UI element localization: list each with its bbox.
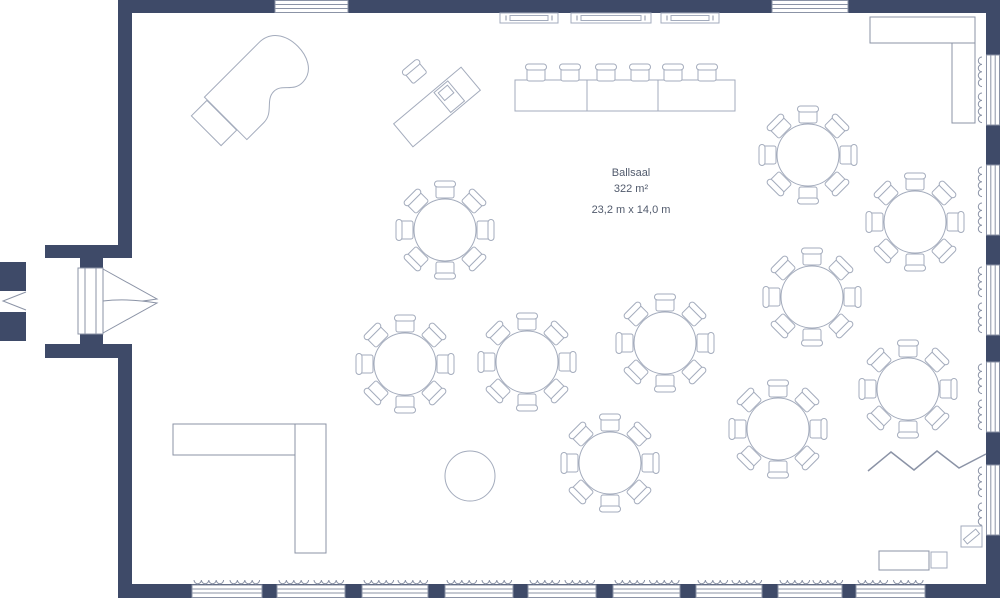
chair-backrest [448, 354, 454, 375]
round-table-5[interactable] [616, 294, 714, 392]
alcove-wall-bottom [45, 344, 132, 358]
curtain [482, 580, 512, 584]
curtain [813, 580, 843, 584]
window-glass [987, 55, 1000, 125]
table-top [496, 331, 558, 393]
chair[interactable] [561, 453, 578, 474]
room-label: Ballsaal 322 m² 23,2 m x 14,0 m [556, 166, 706, 219]
window-bottom-9 [856, 580, 925, 598]
curtain [894, 580, 924, 584]
room-area: 322 m² [556, 182, 706, 198]
chair[interactable] [844, 287, 861, 308]
window-bottom-6 [613, 580, 680, 598]
desk[interactable] [394, 67, 481, 147]
chair[interactable] [859, 379, 876, 400]
counter-top-right-1[interactable] [870, 17, 975, 43]
chair-backrest [821, 419, 827, 440]
chair-backrest [478, 352, 484, 373]
service-cart[interactable] [931, 552, 947, 568]
table-top [414, 199, 476, 261]
curtain [978, 57, 982, 87]
door-jamb-top [80, 258, 103, 268]
chair[interactable] [759, 145, 776, 166]
chair[interactable] [517, 313, 538, 330]
curtain [447, 580, 477, 584]
chair[interactable] [905, 173, 926, 190]
chair[interactable] [655, 375, 676, 392]
chair-backrest [951, 379, 957, 400]
curtain [565, 580, 595, 584]
chair-backrest [759, 145, 765, 166]
window-bottom-4 [445, 580, 513, 598]
chair-backrest [560, 64, 581, 70]
floorplan-svg [0, 0, 1000, 598]
chair-backrest [768, 380, 789, 386]
window-glass [778, 585, 842, 598]
window-glass [277, 585, 345, 598]
window-bottom-3 [362, 580, 428, 598]
sideboard-3[interactable] [661, 13, 719, 23]
chair[interactable] [697, 333, 714, 354]
chair-backrest [488, 220, 494, 241]
chair-backrest [905, 265, 926, 271]
table-top [777, 124, 839, 186]
window-glass [696, 585, 762, 598]
curtain [698, 580, 728, 584]
curtain [194, 580, 224, 584]
curtain [650, 580, 680, 584]
round-table-3[interactable] [866, 173, 964, 271]
chair-backrest [958, 212, 964, 233]
round-table-4[interactable] [763, 248, 861, 346]
chair-backrest [802, 340, 823, 346]
chair-backrest [655, 386, 676, 392]
room-name: Ballsaal [556, 166, 706, 182]
sideboard-2[interactable] [571, 13, 651, 23]
chair-backrest [435, 273, 456, 279]
window-glass [613, 585, 680, 598]
chair[interactable] [810, 419, 827, 440]
chair-backrest [630, 64, 651, 70]
door-leaf-top [103, 269, 157, 302]
head-table-chair[interactable] [560, 64, 581, 81]
chair-backrest [356, 354, 362, 375]
chair-backrest [616, 333, 622, 354]
door-frame [78, 268, 103, 334]
window-bottom-8 [778, 580, 843, 598]
chair-backrest [768, 472, 789, 478]
chair-backrest [798, 106, 819, 112]
curtain [530, 580, 560, 584]
chair-backrest [763, 287, 769, 308]
window-glass [856, 585, 925, 598]
chair-backrest [396, 220, 402, 241]
curtain [398, 580, 428, 584]
curtain [732, 580, 762, 584]
chair-backrest [851, 145, 857, 166]
curtain [858, 580, 888, 584]
chair[interactable] [866, 212, 883, 233]
chair-backrest [697, 64, 718, 70]
table-top [781, 266, 843, 328]
window-bottom-2 [277, 580, 345, 598]
round-table-10[interactable] [561, 414, 659, 512]
chair-backrest [866, 212, 872, 233]
floorplan-canvas: Ballsaal 322 m² 23,2 m x 14,0 m [0, 0, 1000, 598]
curtain [230, 580, 260, 584]
chair[interactable] [356, 354, 373, 375]
chair[interactable] [642, 453, 659, 474]
window-glass [987, 265, 1000, 335]
window-right-3 [978, 265, 999, 335]
table-top [747, 398, 809, 460]
chair[interactable] [947, 212, 964, 233]
chair-backrest [663, 64, 684, 70]
chair[interactable] [395, 396, 416, 413]
door-jamb-bottom [80, 334, 103, 344]
window-glass [772, 1, 848, 13]
exterior-stub-bottom [0, 312, 26, 341]
chair[interactable] [396, 220, 413, 241]
chair[interactable] [898, 421, 919, 438]
chair-backrest [561, 453, 567, 474]
window-bottom-5 [528, 580, 596, 598]
service-table[interactable] [879, 551, 929, 570]
chair-backrest [655, 294, 676, 300]
chair[interactable] [798, 106, 819, 123]
curtain [314, 580, 344, 584]
chair-backrest [898, 432, 919, 438]
chair[interactable] [798, 187, 819, 204]
round-table-7[interactable] [478, 313, 576, 411]
window-glass [275, 1, 348, 13]
wall-left-upper [118, 0, 132, 245]
chair-backrest [905, 173, 926, 179]
window-bottom-1 [192, 580, 262, 598]
head-table-1[interactable] [515, 80, 587, 111]
chair-backrest [600, 506, 621, 512]
chair[interactable] [763, 287, 780, 308]
double-door[interactable] [78, 268, 157, 334]
chair[interactable] [517, 394, 538, 411]
chair-backrest [435, 181, 456, 187]
desk-top [394, 67, 481, 147]
chair[interactable] [600, 414, 621, 431]
curtain [615, 580, 645, 584]
chair[interactable] [905, 254, 926, 271]
window-glass [987, 362, 1000, 432]
head-table-3[interactable] [658, 80, 735, 111]
chair-backrest [395, 407, 416, 413]
chair-backrest [653, 453, 659, 474]
head-table-chair[interactable] [663, 64, 684, 81]
chair-backrest [600, 414, 621, 420]
chair-backrest [395, 315, 416, 321]
cocktail-table[interactable] [445, 451, 495, 501]
chair[interactable] [802, 248, 823, 265]
alcove-wall-top [45, 245, 132, 258]
chair[interactable] [437, 354, 454, 375]
wall-left-lower [118, 358, 132, 598]
chair[interactable] [940, 379, 957, 400]
chair[interactable] [768, 380, 789, 397]
curtain [279, 580, 309, 584]
chair-backrest [708, 333, 714, 354]
round-table-2[interactable] [759, 106, 857, 204]
counter-top-right-2[interactable] [952, 43, 975, 123]
window-right-5 [978, 465, 999, 535]
desk-chair[interactable] [401, 58, 428, 85]
window-bottom-7 [696, 580, 762, 598]
wall-top [118, 0, 1000, 13]
window-glass [362, 585, 428, 598]
chair[interactable] [768, 461, 789, 478]
round-table-8[interactable] [859, 340, 957, 438]
exterior-stub-top [0, 262, 26, 291]
window-glass [987, 465, 1000, 535]
chair[interactable] [840, 145, 857, 166]
chair[interactable] [395, 315, 416, 332]
room-dimensions: 23,2 m x 14,0 m [556, 203, 706, 219]
exterior-door-marks [3, 292, 26, 310]
curtain [978, 93, 982, 123]
chair-backrest [526, 64, 547, 70]
table-top [884, 191, 946, 253]
sideboard-1[interactable] [500, 13, 558, 23]
table-top [579, 432, 641, 494]
window-glass [528, 585, 596, 598]
chair-backrest [855, 287, 861, 308]
chair-backrest [859, 379, 865, 400]
bar-counter-2[interactable] [295, 424, 326, 553]
window-glass [445, 585, 513, 598]
curtain [978, 467, 982, 497]
chair-backrest [898, 340, 919, 346]
table-top [634, 312, 696, 374]
chair-backrest [802, 248, 823, 254]
curtain [978, 203, 982, 233]
chair[interactable] [559, 352, 576, 373]
curtain [978, 364, 982, 394]
table-top [374, 333, 436, 395]
chair[interactable] [435, 262, 456, 279]
chair[interactable] [655, 294, 676, 311]
head-table-chair[interactable] [596, 64, 617, 81]
bar-counter-1[interactable] [173, 424, 295, 455]
room-divider[interactable] [868, 451, 986, 471]
curtain [978, 400, 982, 430]
chair-backrest [570, 352, 576, 373]
window-right-4 [978, 362, 999, 432]
chair[interactable] [616, 333, 633, 354]
wall-speaker[interactable] [961, 526, 982, 547]
chair[interactable] [898, 340, 919, 357]
curtain [978, 267, 982, 297]
round-table-1[interactable] [396, 181, 494, 279]
chair[interactable] [478, 352, 495, 373]
head-table-chair[interactable] [526, 64, 547, 81]
chair[interactable] [435, 181, 456, 198]
chair[interactable] [600, 495, 621, 512]
window-right-1 [978, 55, 999, 125]
curtain [364, 580, 394, 584]
curtain [978, 303, 982, 333]
chair-backrest [798, 198, 819, 204]
table-top [877, 358, 939, 420]
sideboard-inner [581, 16, 641, 21]
chair-backrest [517, 313, 538, 319]
chair-backrest [517, 405, 538, 411]
curtain [780, 580, 810, 584]
head-table-chair[interactable] [697, 64, 718, 81]
door-leaf-bottom [103, 300, 157, 333]
chair-backrest [729, 419, 735, 440]
sideboard-inner [510, 16, 548, 21]
window-glass [987, 165, 1000, 235]
window-right-2 [978, 165, 999, 235]
head-table-2[interactable] [587, 80, 658, 111]
round-table-6[interactable] [356, 315, 454, 413]
chair[interactable] [802, 329, 823, 346]
window-top-2 [772, 1, 848, 13]
round-table-9[interactable] [729, 380, 827, 478]
window-glass [192, 585, 262, 598]
window-top-1 [275, 1, 348, 13]
chair[interactable] [477, 220, 494, 241]
sideboard-inner [671, 16, 709, 21]
curtain [978, 167, 982, 197]
chair-backrest [596, 64, 617, 70]
chair[interactable] [729, 419, 746, 440]
head-table-chair[interactable] [630, 64, 651, 81]
